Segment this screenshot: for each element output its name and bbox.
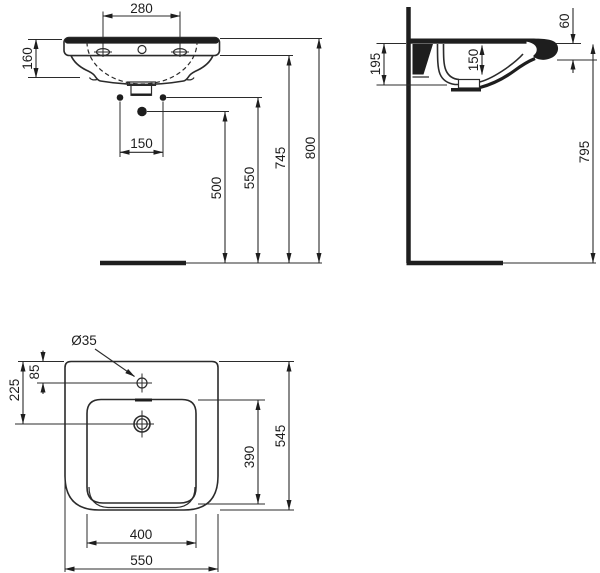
dim-500-lower-fixing-height: 500 [147,112,229,263]
lower-fixing-hole [137,107,147,117]
plan-view: Ø35 85 225 390 545 [7,333,294,572]
washbasin-dimension-drawing: 280 160 150 500 550 [0,0,600,573]
dim-label: 195 [368,53,383,76]
dim-label: 390 [242,446,257,469]
bowl-under-surface [480,59,535,88]
dim-label: 160 [20,47,35,70]
dim-85-tap-hole-offset: 85 [27,351,43,395]
dim-label: 795 [577,141,592,164]
dim-label: 150 [130,136,153,151]
dim-150-bowl-depth: 150 [466,46,482,75]
dim-745-rim-underside-height: 745 [220,56,293,263]
dim-label: 545 [273,425,288,448]
wall-bracket [413,44,434,75]
drain-trap-side [459,80,480,89]
dim-225-overflow-offset: 225 [7,362,23,424]
dim-label: 60 [557,13,572,28]
dim-label: 150 [466,49,481,72]
side-view: 195 150 60 795 [368,7,597,263]
dim-795-front-edge-height: 795 [577,45,593,263]
dim-label: 400 [130,527,153,542]
technical-drawing: 280 160 150 500 550 [0,0,600,573]
dim-label: 550 [242,167,257,190]
dim-label: 85 [27,364,42,379]
dim-label: 550 [130,553,153,568]
fixing-hole-right [160,94,167,101]
dim-label: 225 [7,379,22,402]
bowl-back-inner [444,44,460,80]
dim-label: 280 [130,1,153,16]
dim-400-bowl-width: 400 [87,514,196,548]
deck-section [411,39,527,44]
front-rim-curl [524,39,558,60]
dim-60-front-edge: 60 [556,8,597,73]
dim-280-tap-spacing: 280 [103,1,180,16]
dim-label: Ø35 [71,333,97,348]
dim-800-rim-top-height: 800 [220,39,322,263]
dim-545-overall-depth: 545 [220,362,294,510]
dim-label: 745 [273,147,288,170]
fixing-hole-left [117,94,124,101]
front-view: 280 160 150 500 550 [20,1,322,263]
dim-label: 800 [303,137,318,160]
dim-label: 500 [209,177,224,200]
